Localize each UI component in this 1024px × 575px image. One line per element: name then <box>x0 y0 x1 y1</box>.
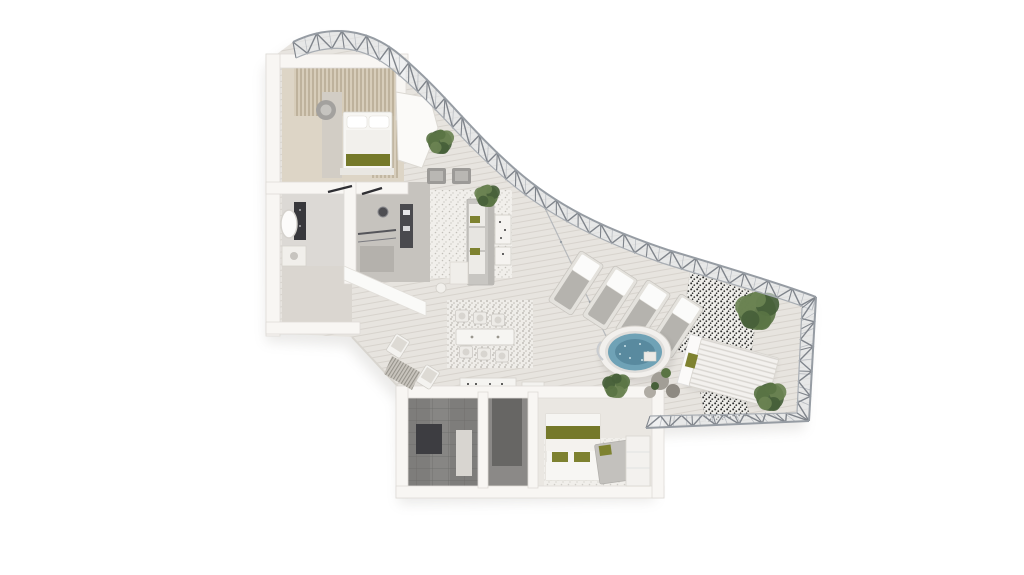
corridor-shadow <box>492 396 522 466</box>
dining-chair <box>478 348 491 360</box>
floor-plan-svg <box>0 0 1024 575</box>
lower-block <box>396 386 664 498</box>
bathtub <box>281 210 297 238</box>
olive-headband <box>546 426 600 439</box>
plant-foliage <box>483 185 492 194</box>
centerpiece <box>471 336 474 339</box>
olive-pillow <box>470 216 480 223</box>
terrace-box <box>644 352 656 361</box>
second-bed <box>546 414 600 480</box>
olive-pillow <box>470 248 480 255</box>
dining-chair <box>496 350 509 362</box>
olive-pillow <box>552 452 568 462</box>
art-detail <box>403 226 410 231</box>
chaise <box>450 262 468 284</box>
second-bedroom-cabinet <box>626 436 650 486</box>
olive-cushion <box>599 444 612 456</box>
slat-wall-texture <box>294 66 402 116</box>
hall-floor <box>282 266 352 330</box>
olive-pillow <box>574 452 590 462</box>
dining-chair <box>492 314 505 326</box>
side-table <box>436 283 446 293</box>
plant-foliage <box>741 310 759 328</box>
plant-foliage <box>478 196 489 207</box>
art-detail <box>403 210 410 215</box>
coffee-tables <box>495 215 511 265</box>
plant-foliage <box>765 382 777 394</box>
plant-foliage <box>430 142 442 154</box>
dining-chair <box>456 310 469 322</box>
dark-mat <box>416 424 442 454</box>
dining-chair <box>474 312 487 324</box>
armchair-seat <box>430 171 443 181</box>
dining-chair <box>460 346 473 358</box>
plant-foliage <box>436 130 446 140</box>
armchair-seat <box>455 171 468 181</box>
centerpiece <box>497 336 500 339</box>
basin <box>378 207 388 217</box>
truss-post <box>427 80 428 101</box>
plant-foliage <box>612 374 622 384</box>
dining-table <box>456 329 514 345</box>
plant-foliage <box>758 397 771 410</box>
plant-foliage <box>606 386 618 398</box>
olive-throw <box>346 154 390 166</box>
truss-post <box>692 415 693 426</box>
master-bed <box>340 112 394 175</box>
truss-post <box>497 153 498 171</box>
bath-bench <box>456 430 472 476</box>
master-armchair <box>316 100 336 120</box>
floor-plan-stage <box>0 0 1024 575</box>
